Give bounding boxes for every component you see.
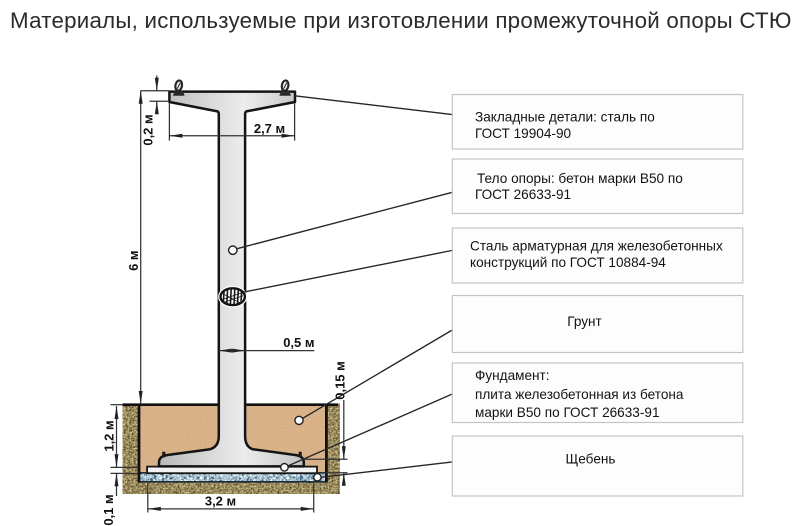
svg-text:конструкций по ГОСТ 10884-94: конструкций по ГОСТ 10884-94 <box>470 255 666 270</box>
svg-text:6 м: 6 м <box>126 250 141 270</box>
svg-text:0,5 м: 0,5 м <box>283 335 314 350</box>
svg-text:Фундамент:: Фундамент: <box>475 368 550 383</box>
svg-text:Сталь арматурная для железобет: Сталь арматурная для железобетонных <box>470 238 723 253</box>
svg-text:ГОСТ 19904-90: ГОСТ 19904-90 <box>475 126 572 141</box>
svg-text:Щебень: Щебень <box>566 451 616 466</box>
svg-text:марки В50 по ГОСТ 26633-91: марки В50 по ГОСТ 26633-91 <box>475 405 660 420</box>
svg-text:0,15 м: 0,15 м <box>333 361 348 400</box>
svg-text:0,2 м: 0,2 м <box>141 114 156 145</box>
svg-text:0,1 м: 0,1 м <box>101 494 116 525</box>
svg-text:ГОСТ 26633-91: ГОСТ 26633-91 <box>475 187 571 202</box>
svg-text:1,2 м: 1,2 м <box>102 420 117 451</box>
svg-text:Материалы, используемые при из: Материалы, используемые при изготовлении… <box>10 8 792 33</box>
svg-text:Грунт: Грунт <box>567 314 602 329</box>
svg-text:2,7 м: 2,7 м <box>254 121 285 136</box>
svg-text:плита железобетонная из бетона: плита железобетонная из бетона <box>475 387 684 402</box>
svg-text:Закладные детали: сталь по: Закладные детали: сталь по <box>475 109 655 124</box>
svg-text:Тело опоры: бетон марки В50 по: Тело опоры: бетон марки В50 по <box>477 171 683 186</box>
svg-text:3,2 м: 3,2 м <box>205 494 236 509</box>
